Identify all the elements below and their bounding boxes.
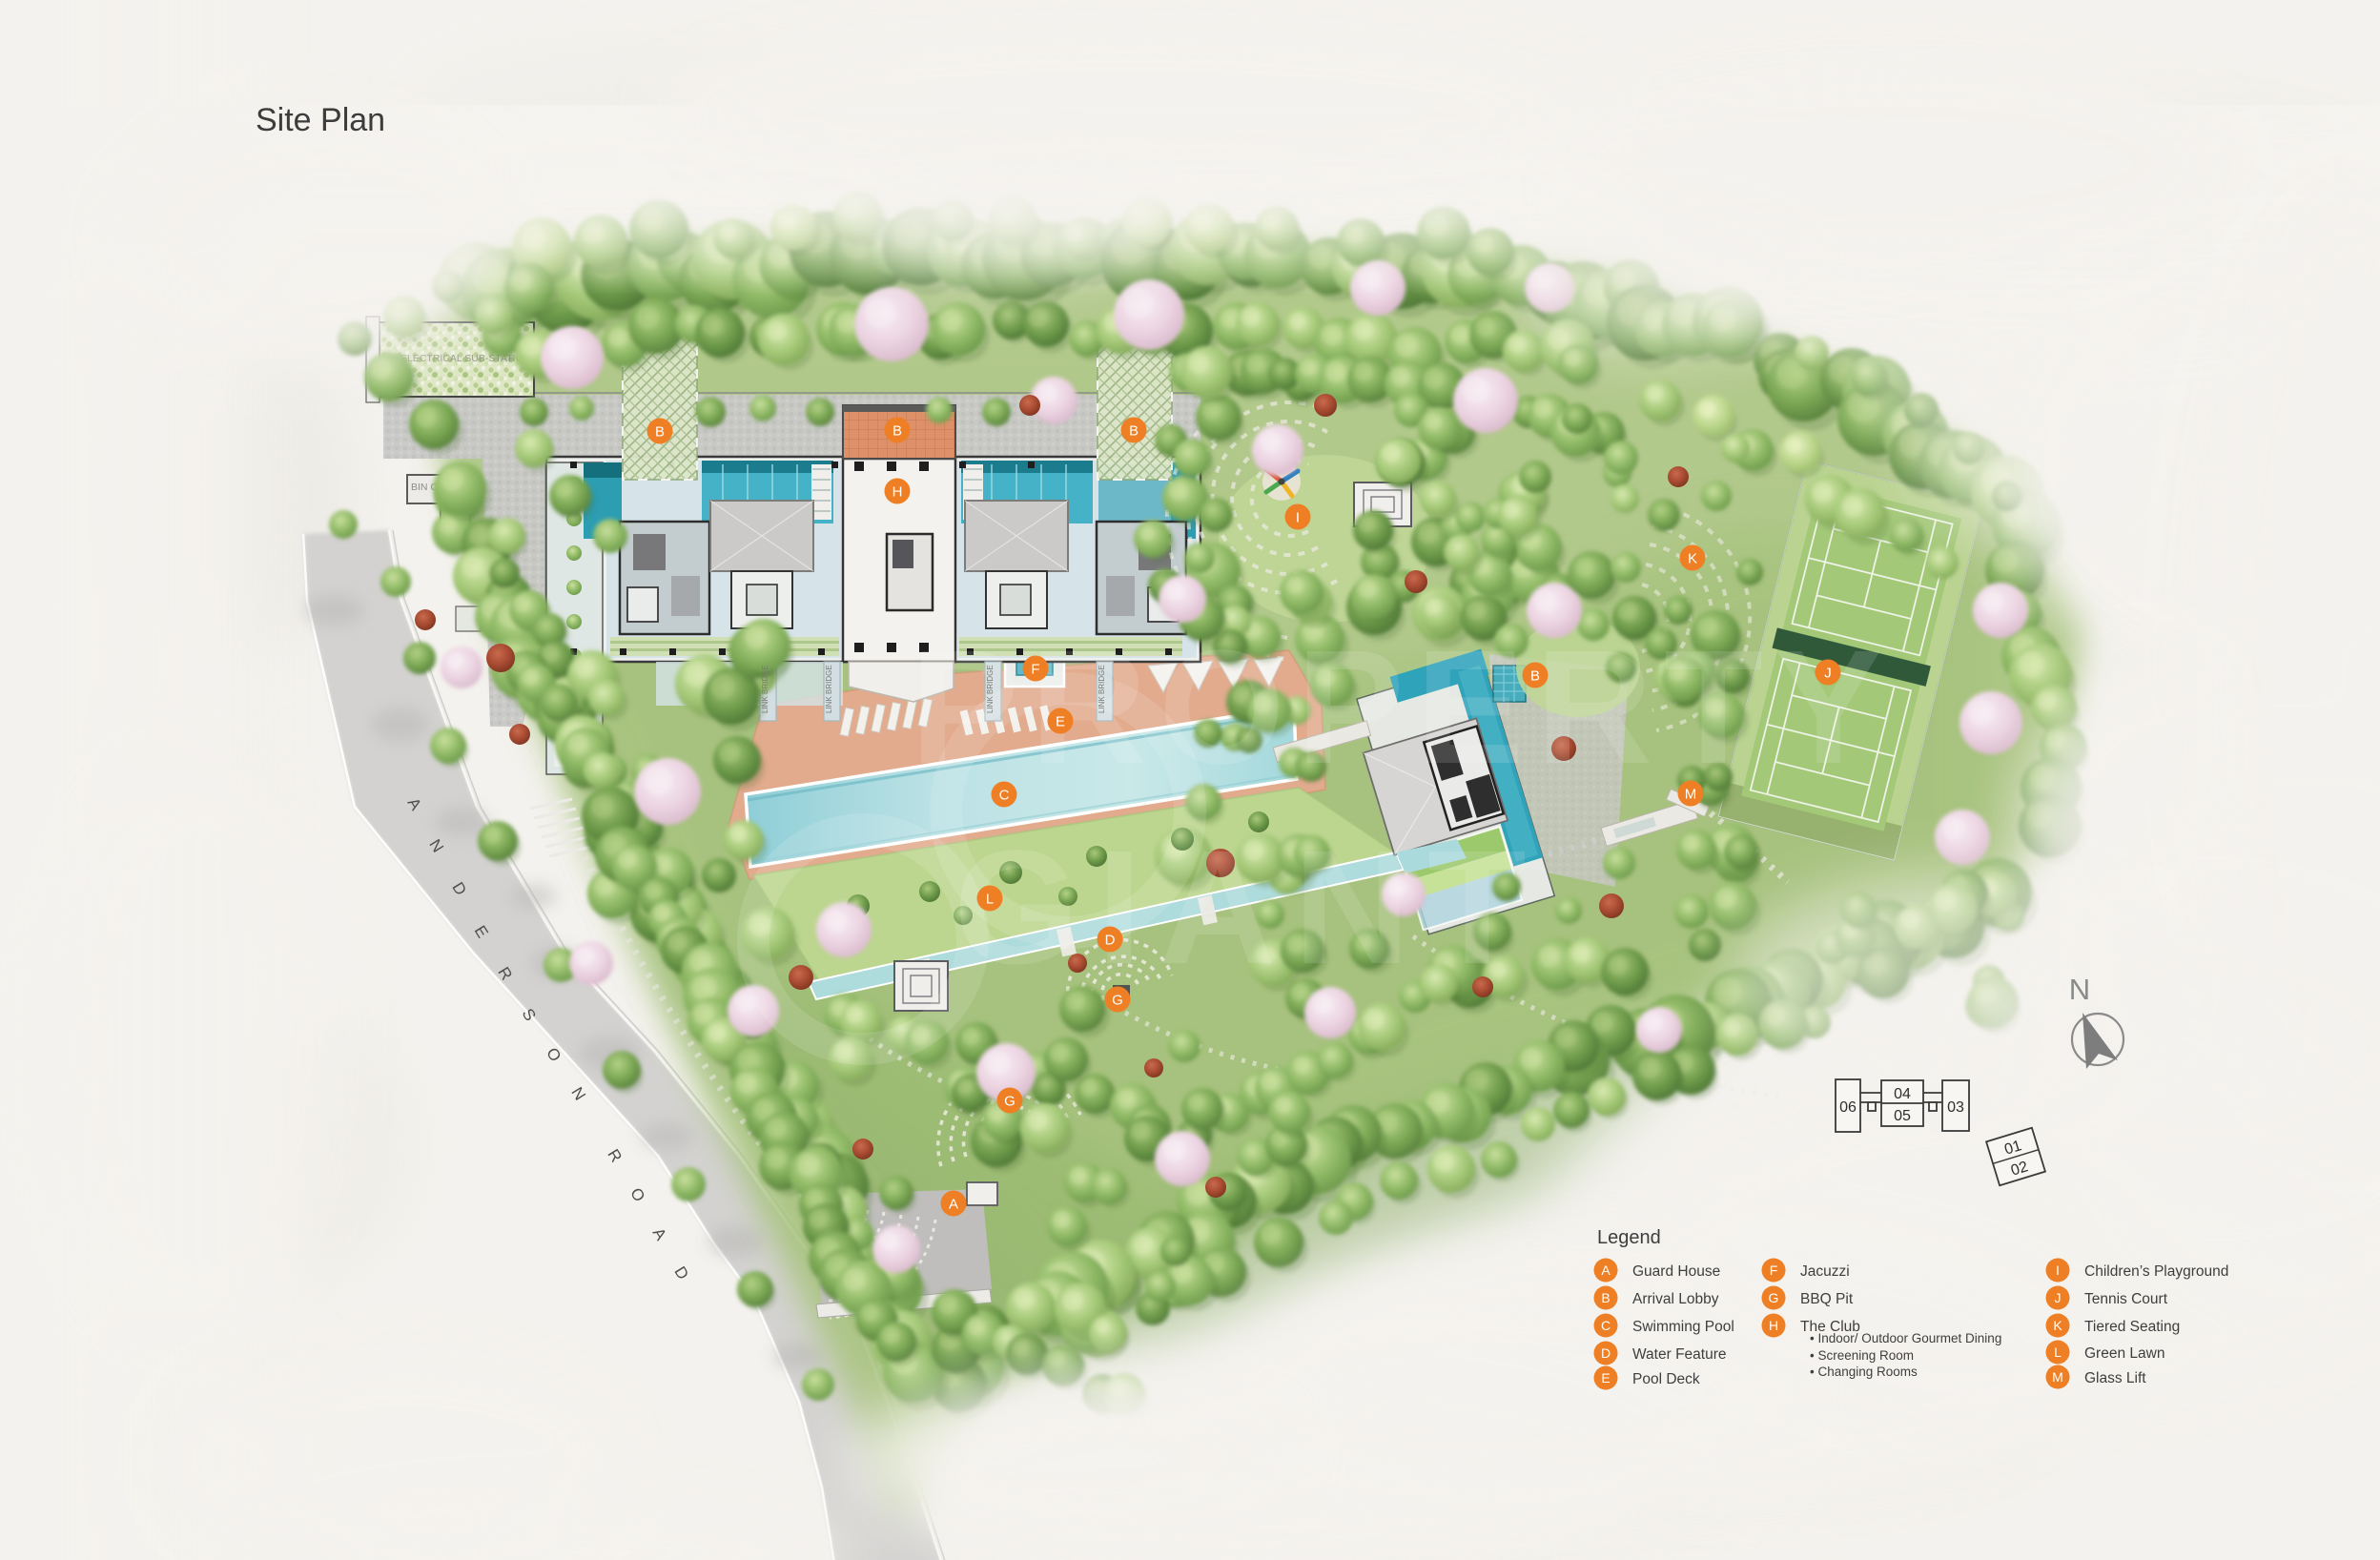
svg-text:GIANT: GIANT [954,817,1544,998]
svg-text:J: J [1824,666,1832,682]
svg-text:B: B [1129,423,1139,440]
svg-text:E: E [1056,714,1065,730]
svg-text:D: D [1105,933,1116,949]
svg-text:M: M [1685,787,1697,803]
svg-text:06: 06 [1839,1099,1857,1116]
svg-text:H: H [892,484,903,501]
svg-text:L: L [2054,1344,2062,1360]
svg-text:A: A [949,1197,958,1213]
svg-text:E: E [1601,1370,1610,1386]
svg-text:G: G [1769,1290,1779,1305]
svg-text:Glass Lift: Glass Lift [2084,1370,2146,1386]
svg-text:BBQ Pit: BBQ Pit [1800,1291,1854,1307]
svg-text:PROPERTY: PROPERTY [911,617,1894,798]
svg-text:LINK BRIDGE: LINK BRIDGE [1098,665,1106,713]
svg-text:Green Lawn: Green Lawn [2084,1345,2165,1362]
svg-text:A: A [1601,1262,1611,1278]
svg-text:Swimming Pool: Swimming Pool [1632,1319,1734,1335]
svg-text:C: C [1601,1318,1611,1333]
svg-text:F: F [1031,662,1039,678]
svg-text:Pool Deck: Pool Deck [1632,1371,1700,1387]
svg-text:I: I [2056,1262,2060,1278]
svg-text:Tennis Court: Tennis Court [2084,1291,2168,1307]
svg-text:Children’s Playground: Children’s Playground [2084,1263,2228,1280]
svg-text:Arrival Lobby: Arrival Lobby [1632,1291,1719,1307]
svg-text:Water Feature: Water Feature [1632,1346,1727,1363]
svg-text:• Screening Room: • Screening Room [1810,1348,1914,1363]
svg-text:• Indoor/ Outdoor Gourmet Dini: • Indoor/ Outdoor Gourmet Dining [1810,1331,2001,1345]
svg-text:LINK BRIDGE: LINK BRIDGE [761,665,769,713]
svg-text:K: K [2053,1318,2062,1333]
svg-text:B: B [892,423,902,440]
svg-text:M: M [2052,1369,2063,1385]
svg-text:Guard House: Guard House [1632,1263,1720,1280]
svg-text:B: B [1530,668,1540,685]
svg-text:05: 05 [1894,1108,1911,1124]
svg-text:LINK BRIDGE: LINK BRIDGE [825,665,833,713]
svg-text:G: G [1112,993,1123,1009]
svg-text:F: F [1770,1262,1778,1278]
svg-text:LINK BRIDGE: LINK BRIDGE [986,665,995,713]
svg-text:C: C [999,788,1010,804]
svg-text:03: 03 [1947,1099,1964,1116]
svg-text:I: I [1296,510,1300,526]
svg-text:L: L [986,892,994,908]
svg-text:B: B [1601,1290,1610,1305]
svg-text:G: G [1004,1094,1016,1110]
svg-text:Site Plan: Site Plan [256,102,385,138]
svg-text:Tiered Seating: Tiered Seating [2084,1319,2180,1335]
svg-text:• Changing Rooms: • Changing Rooms [1810,1365,1918,1379]
svg-text:Legend: Legend [1597,1227,1661,1248]
svg-text:J: J [2055,1290,2062,1305]
svg-text:D: D [1601,1345,1611,1361]
svg-text:N: N [2069,973,2090,1006]
svg-text:H: H [1769,1318,1778,1333]
svg-text:04: 04 [1894,1086,1911,1102]
svg-text:K: K [1688,551,1697,567]
svg-text:B: B [655,424,665,441]
svg-text:Jacuzzi: Jacuzzi [1800,1263,1850,1280]
